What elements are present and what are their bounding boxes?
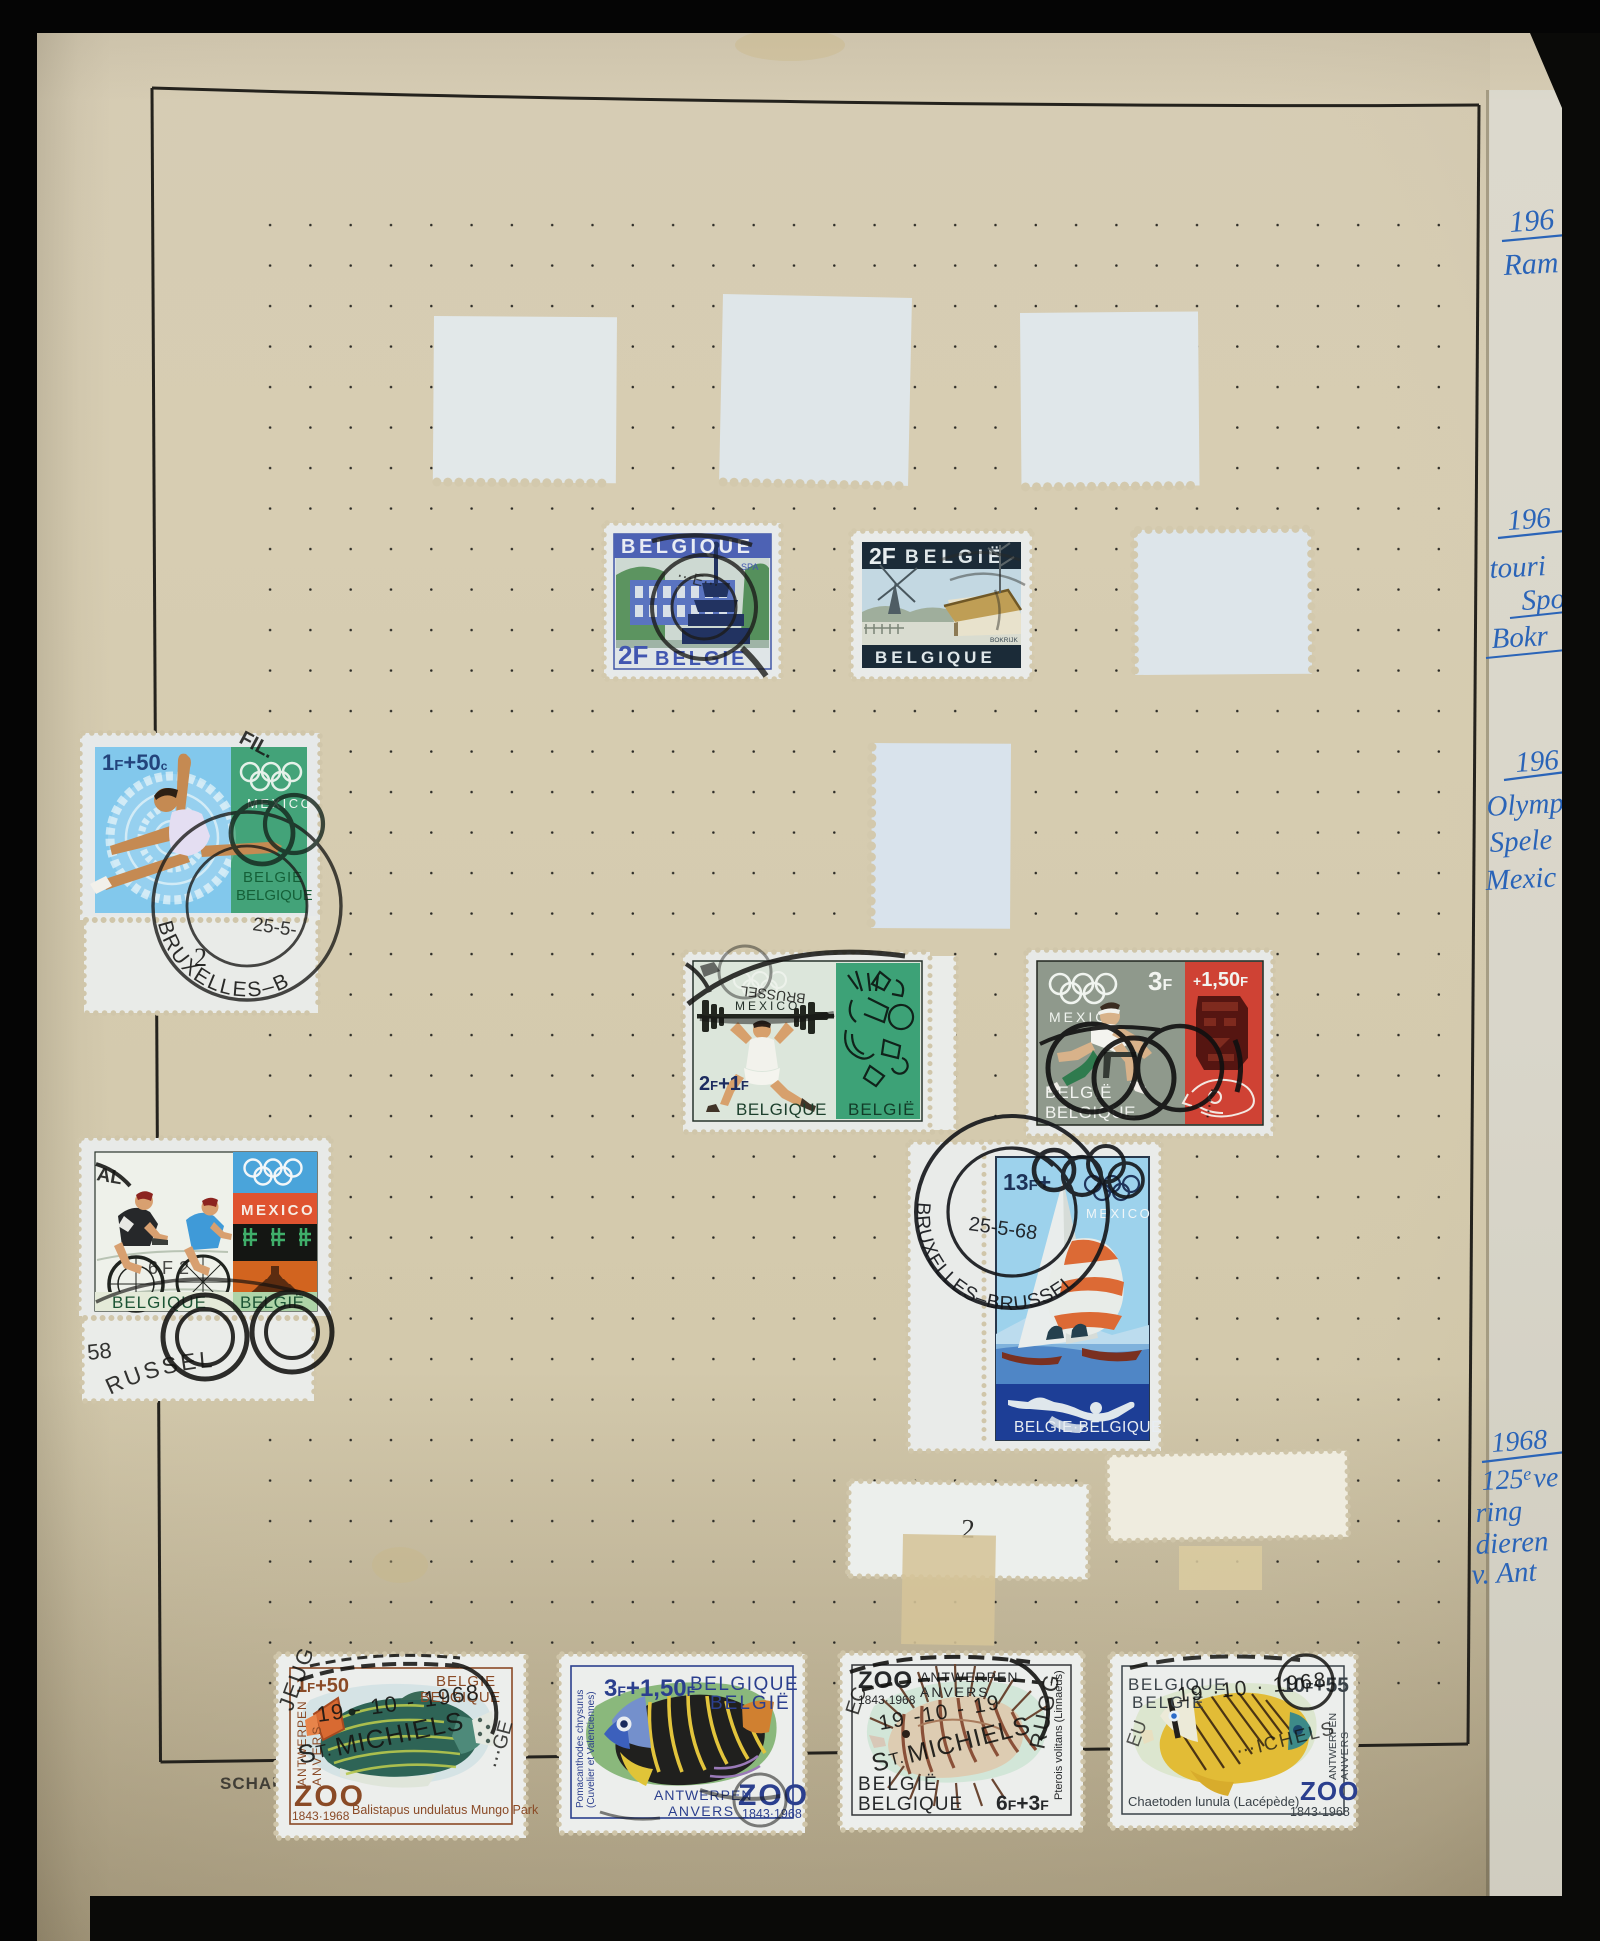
- svg-text:196: 196: [1508, 203, 1555, 239]
- svg-text:BELGIE·BELGIQUE: BELGIE·BELGIQUE: [1014, 1419, 1162, 1436]
- svg-text:196: 196: [1506, 502, 1552, 537]
- svg-text:BELGIQUE: BELGIQUE: [736, 1100, 827, 1119]
- svg-text:1843·1968: 1843·1968: [742, 1807, 802, 1821]
- svg-text:Ram: Ram: [1502, 246, 1560, 282]
- svg-text:Balistapus undulatus Mungo Par: Balistapus undulatus Mungo Park: [352, 1803, 539, 1817]
- svg-text:Mexic: Mexic: [1484, 861, 1558, 897]
- svg-text:6F2: 6F2: [148, 1258, 189, 1278]
- svg-text:BELGIË: BELGIË: [858, 1774, 939, 1795]
- svg-text:v. Ant: v. Ant: [1471, 1556, 1538, 1591]
- svg-text:Pomacanthodes chrysurus: Pomacanthodes chrysurus: [575, 1690, 586, 1808]
- svg-text:BELGIQUE: BELGIQUE: [858, 1794, 963, 1815]
- svg-text:Olymp: Olymp: [1486, 787, 1565, 823]
- svg-text:BELGIQUE: BELGIQUE: [875, 648, 996, 667]
- svg-text:ANTWERPEN: ANTWERPEN: [920, 1669, 1018, 1685]
- svg-text:BELGIË: BELGIË: [710, 1693, 791, 1714]
- svg-text:Bokr: Bokr: [1491, 620, 1550, 655]
- svg-text:58: 58: [86, 1338, 113, 1365]
- svg-text:BOKRIJK: BOKRIJK: [990, 637, 1018, 644]
- svg-text:1F+50c: 1F+50c: [102, 750, 168, 775]
- svg-text:1843·1968: 1843·1968: [1290, 1805, 1350, 1819]
- svg-text:125eve: 125eve: [1481, 1462, 1559, 1497]
- svg-text:AL: AL: [95, 1164, 124, 1189]
- svg-text:touri: touri: [1489, 550, 1547, 585]
- svg-text:+1,50F: +1,50F: [1193, 969, 1248, 991]
- svg-text:MEXICO: MEXICO: [241, 1202, 315, 1219]
- svg-text:2F: 2F: [869, 543, 896, 569]
- svg-text:ring: ring: [1475, 1496, 1523, 1529]
- svg-text:BELGIQUE: BELGIQUE: [236, 887, 313, 904]
- svg-text:MEXICO: MEXICO: [1086, 1206, 1152, 1221]
- svg-text:ANVERS: ANVERS: [1339, 1731, 1351, 1780]
- svg-text:Spele: Spele: [1489, 824, 1554, 859]
- svg-text:(Cuvelier et Valenciennes): (Cuvelier et Valenciennes): [586, 1691, 597, 1808]
- svg-text:BELGIE: BELGIE: [243, 869, 303, 886]
- svg-text:1843·1968: 1843·1968: [292, 1809, 350, 1823]
- svg-text:1968: 1968: [1490, 1424, 1548, 1459]
- svg-text:2F: 2F: [618, 640, 648, 670]
- svg-text:BELGIQUE: BELGIQUE: [690, 1674, 799, 1695]
- svg-text:13F+: 13F+: [1003, 1169, 1051, 1195]
- svg-text:Chaetoden lunula (Lacépède): Chaetoden lunula (Lacépède): [1128, 1794, 1299, 1809]
- svg-text:BELGIË: BELGIË: [848, 1100, 915, 1119]
- svg-text:ANVERS: ANVERS: [668, 1803, 735, 1819]
- svg-text:dieren: dieren: [1475, 1525, 1550, 1561]
